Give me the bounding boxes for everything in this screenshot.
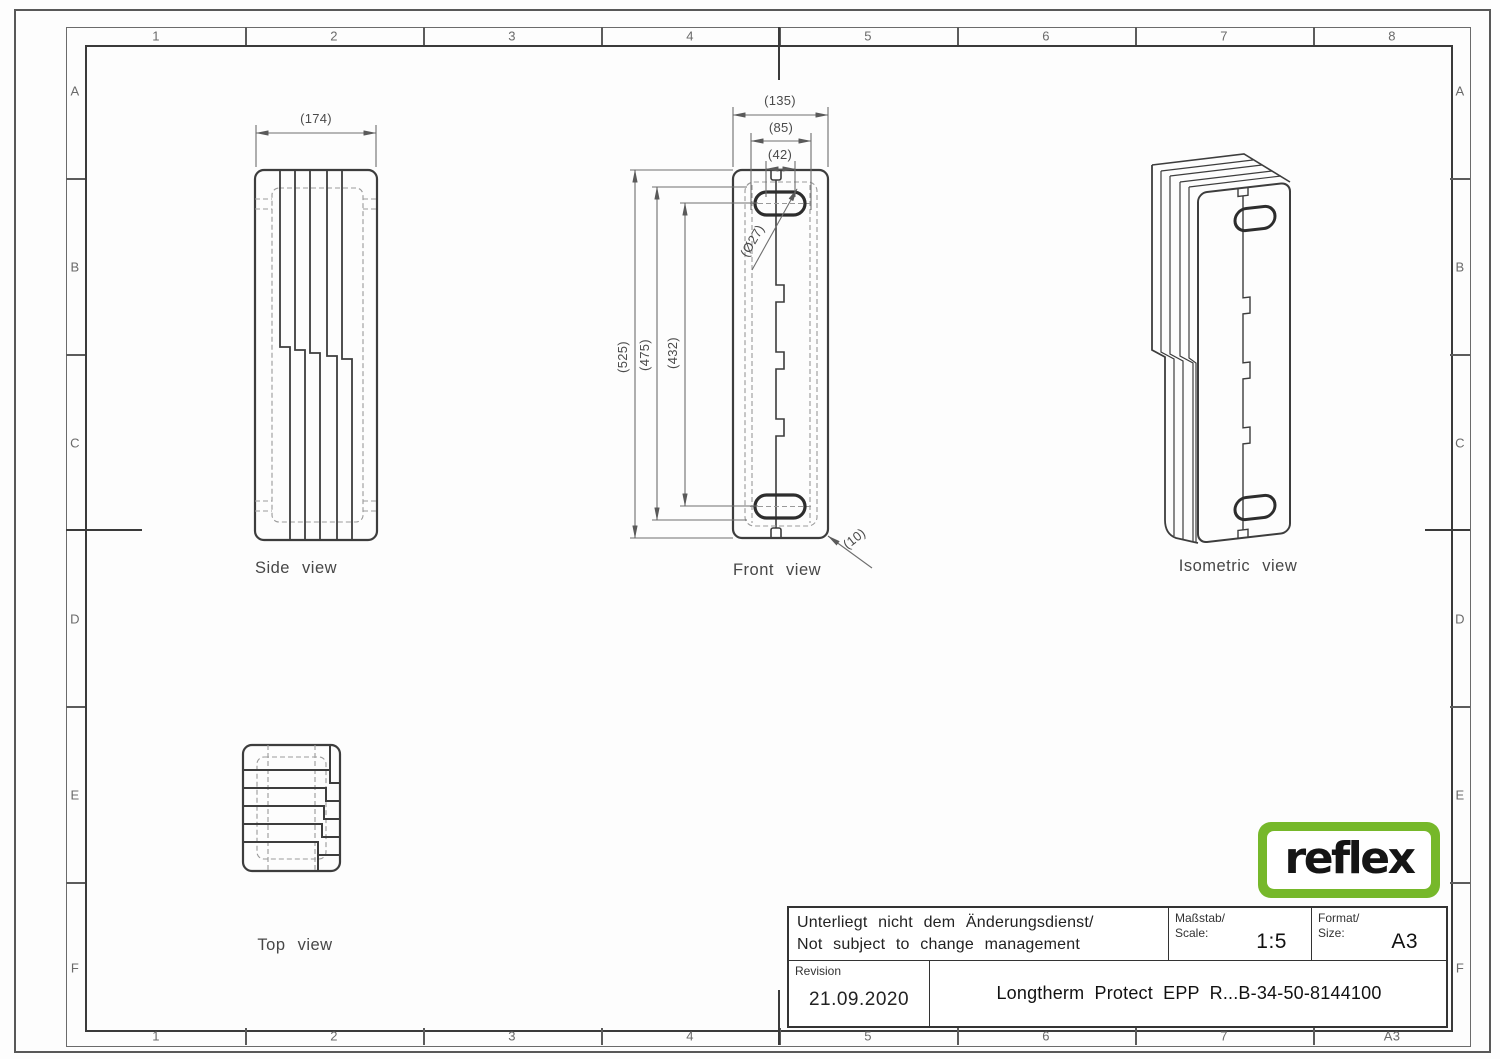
change-note-cell: Unterliegt nicht dem Änderungsdienst/ No…	[789, 908, 1169, 960]
front-view: (135) (85) (42) (525) (475) (432) (Ø27) …	[600, 85, 900, 585]
center-mark	[778, 990, 780, 1045]
drawing-sheet: 1 2 3 4 5 6 7 8 1 2 3 4 5 6 7 A3 A B C D…	[0, 0, 1500, 1059]
dim-side-width: (174)	[300, 111, 332, 126]
reflex-logo: reflex	[1258, 822, 1440, 898]
frame-column-label: 4	[686, 29, 694, 44]
frame-tick	[66, 178, 85, 180]
dim-port-diameter: (Ø27)	[737, 222, 767, 260]
scale-value: 1:5	[1256, 930, 1287, 954]
side-view: (174) Side view	[230, 103, 405, 583]
frame-column-label: 6	[1042, 29, 1050, 44]
frame-row-label: E	[1456, 788, 1465, 803]
dim-port-pitch-h: (432)	[665, 337, 680, 369]
center-mark	[66, 529, 142, 531]
frame-row-label: D	[70, 612, 80, 627]
frame-row-label: B	[1456, 260, 1465, 275]
revision-cell: Revision 21.09.2020	[789, 960, 930, 1026]
format-label-en: Size:	[1318, 926, 1448, 941]
center-mark	[1425, 529, 1470, 531]
frame-row-label: F	[1456, 961, 1464, 976]
frame-row-label: A	[1456, 84, 1465, 99]
top-view: Top view	[235, 735, 405, 965]
frame-tick	[1135, 27, 1137, 45]
frame-tick	[1450, 178, 1470, 180]
change-note-en: Not subject to change management	[797, 934, 1160, 956]
frame-tick	[66, 882, 85, 884]
format-label-de: Format/	[1318, 911, 1448, 926]
frame-row-label: A	[71, 84, 80, 99]
frame-column-label: 2	[330, 1029, 338, 1044]
dim-body-height: (475)	[637, 339, 652, 371]
dim-port-pitch-w: (85)	[769, 120, 793, 135]
frame-column-label: 5	[864, 29, 872, 44]
frame-row-label: D	[1455, 612, 1465, 627]
front-view-label: Front view	[733, 561, 821, 579]
reflex-logo-inner: reflex	[1267, 831, 1431, 889]
frame-tick	[1450, 706, 1470, 708]
isometric-view: Isometric view	[1128, 138, 1358, 583]
change-note-de: Unterliegt nicht dem Änderungsdienst/	[797, 912, 1160, 934]
frame-tick	[245, 1028, 247, 1045]
frame-tick	[957, 27, 959, 45]
revision-date: 21.09.2020	[789, 989, 929, 1011]
frame-tick	[1135, 1028, 1137, 1045]
part-title: Longtherm Protect EPP R...B-34-50-814410…	[996, 983, 1381, 1004]
frame-tick	[601, 1028, 603, 1045]
frame-tick	[601, 27, 603, 45]
frame-tick	[423, 27, 425, 45]
frame-row-label: C	[70, 436, 80, 451]
frame-row-label: B	[71, 260, 80, 275]
frame-tick	[1450, 882, 1470, 884]
frame-column-label: 6	[1042, 1029, 1050, 1044]
top-view-label: Top view	[257, 936, 332, 954]
scale-cell: Maßstab/ Scale: 1:5	[1169, 908, 1312, 960]
frame-column-label: 3	[508, 29, 516, 44]
scale-label-en: Scale:	[1175, 926, 1311, 941]
frame-column-label: 5	[864, 1029, 872, 1044]
center-mark	[778, 27, 780, 80]
frame-column-label: 4	[686, 1029, 694, 1044]
part-title-cell: Longtherm Protect EPP R...B-34-50-814410…	[930, 960, 1448, 1026]
frame-tick	[245, 27, 247, 45]
frame-row-label: C	[1455, 436, 1465, 451]
frame-tick	[66, 354, 85, 356]
frame-column-label: 1	[152, 1029, 160, 1044]
format-value: A3	[1391, 930, 1418, 954]
frame-column-label: 2	[330, 29, 338, 44]
dim-front-width: (135)	[764, 93, 796, 108]
frame-row-label: E	[71, 788, 80, 803]
frame-tick	[423, 1028, 425, 1045]
frame-row-label: F	[71, 961, 79, 976]
frame-tick	[1313, 1028, 1315, 1045]
frame-column-label: 3	[508, 1029, 516, 1044]
format-cell: Format/ Size: A3	[1312, 908, 1448, 960]
dim-overall-height: (525)	[615, 341, 630, 373]
frame-column-label: 1	[152, 29, 160, 44]
frame-tick	[957, 1028, 959, 1045]
dim-slot-width: (42)	[768, 147, 792, 162]
revision-label: Revision	[789, 961, 929, 979]
frame-column-label: 8	[1388, 29, 1396, 44]
frame-tick	[66, 706, 85, 708]
title-block: Unterliegt nicht dem Änderungsdienst/ No…	[787, 906, 1448, 1028]
frame-tick	[1313, 27, 1315, 45]
reflex-logo-text: reflex	[1285, 833, 1414, 884]
frame-column-label: 7	[1220, 29, 1228, 44]
frame-column-label: A3	[1384, 1029, 1401, 1044]
side-view-label: Side view	[255, 559, 337, 577]
frame-tick	[1450, 354, 1470, 356]
scale-label-de: Maßstab/	[1175, 911, 1311, 926]
frame-column-label: 7	[1220, 1029, 1228, 1044]
isometric-view-label: Isometric view	[1179, 557, 1298, 575]
